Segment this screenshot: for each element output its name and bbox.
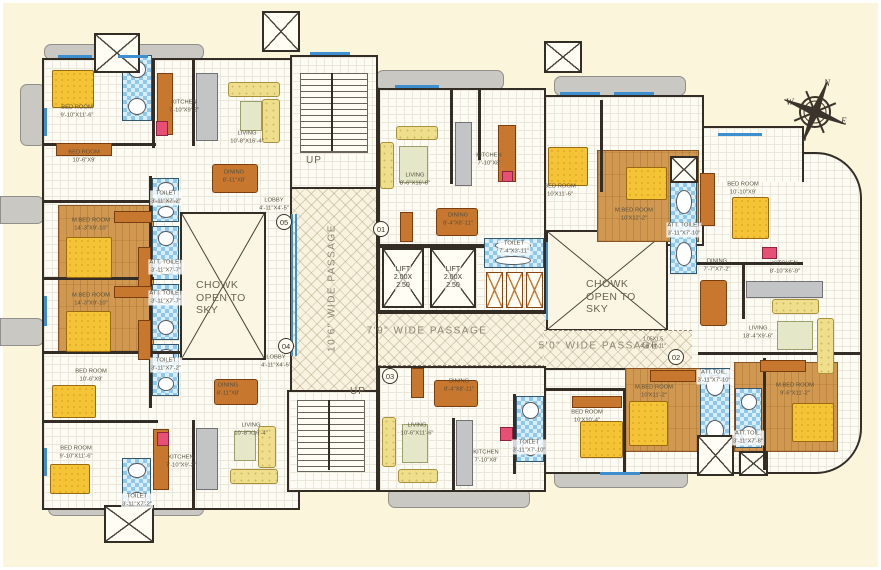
wall xyxy=(513,394,516,474)
room-label: M.BED ROOM9'-6"X11'-2" xyxy=(776,382,814,397)
wall xyxy=(42,420,158,423)
window xyxy=(44,448,47,476)
room-label: M.BED ROOM14'-3"X9'-10" xyxy=(72,292,110,307)
wall xyxy=(600,100,603,192)
wall xyxy=(742,262,745,319)
bed xyxy=(52,385,96,418)
room-label: LOBBY4'-11"X4'-5" xyxy=(259,197,289,212)
sofa xyxy=(380,142,394,189)
kitchen-counter xyxy=(456,420,473,486)
room-label: BED ROOM9'-10"X11'-6" xyxy=(60,445,93,460)
room-label: LIVING18'-4"X9'-6" xyxy=(743,325,773,340)
bed xyxy=(52,70,94,108)
shaft xyxy=(670,156,698,183)
kitchen-counter xyxy=(196,73,218,141)
lift-label: LIFT xyxy=(445,266,461,274)
wardrobe xyxy=(760,360,806,372)
unit-number-03: 03 xyxy=(382,368,398,384)
room-label: KITCHEN7'-10"X9'-2" xyxy=(169,99,199,114)
wall xyxy=(42,351,180,354)
niche-dimension: 1.05X1.54'-0"X4'-11" xyxy=(640,337,666,350)
compass-e: E xyxy=(841,116,847,126)
floor-plan: LIFT 2.00X 2.50 LIFT 2.00X 2.50 xyxy=(0,0,881,570)
duct-box xyxy=(506,272,523,308)
accent-block xyxy=(502,171,513,182)
lift-2: LIFT 2.00X 2.50 xyxy=(430,248,476,308)
room-label: ATT. TOILET3'-11"X7'-7" xyxy=(148,290,183,305)
room-label: DINING8'-4"X8'-11" xyxy=(444,378,474,393)
wardrobe xyxy=(138,320,151,360)
room-label: ATT.TOIL.3'-11"X7'-8" xyxy=(732,430,764,445)
unit-number-02: 02 xyxy=(668,349,684,365)
bed xyxy=(629,401,668,446)
rug xyxy=(240,101,262,131)
room-label: LIVING10'-6"X11'-6" xyxy=(401,422,434,437)
balcony xyxy=(0,196,44,224)
unit-number-01: 01 xyxy=(373,221,389,237)
room-label: TOILET3'-11"X7'-2" xyxy=(150,190,182,205)
bed xyxy=(626,167,667,200)
room-label: BED ROOM10'-6"X9' xyxy=(75,368,107,383)
passage-79 xyxy=(378,312,546,366)
room-label: ATT. TOILET3'-11"X7'-7" xyxy=(148,259,183,274)
staircase-top xyxy=(300,73,368,153)
lift-label: LIFT xyxy=(395,266,411,274)
shaft xyxy=(697,435,734,476)
compass-n: N xyxy=(824,78,830,88)
wardrobe xyxy=(114,211,152,223)
window xyxy=(718,133,762,136)
stairs-up-label: UP xyxy=(350,386,366,397)
sofa xyxy=(230,469,278,484)
wardrobe xyxy=(411,368,424,398)
duct-box xyxy=(526,272,543,308)
passage-vertical-label: 10'6" WIDE PASSAGE xyxy=(327,224,338,352)
lift-size: 2.50 xyxy=(445,282,461,290)
room-label: M.BED ROOM10'X12'-2" xyxy=(615,207,653,222)
window xyxy=(295,214,297,356)
wall xyxy=(452,418,455,492)
wardrobe xyxy=(114,286,152,298)
shaft xyxy=(104,505,154,543)
balcony xyxy=(0,318,44,346)
unit-number-04: 04 xyxy=(278,338,294,354)
wall xyxy=(544,388,626,391)
unit-number-05: 05 xyxy=(276,214,292,230)
window xyxy=(44,296,47,326)
bed xyxy=(792,403,834,442)
room-label: ATT.TOIL.3'-11"X7'-10" xyxy=(697,369,732,384)
compass-rose xyxy=(779,76,851,148)
window xyxy=(546,242,548,320)
room-label: LOBBY4'-11"X4'-5" xyxy=(261,354,291,369)
wardrobe xyxy=(700,173,715,226)
chowk-right-label: CHOWKOPEN TOSKY xyxy=(586,278,636,316)
lift-size: 2.00X xyxy=(393,274,413,282)
kitchen-counter xyxy=(746,281,823,298)
wall xyxy=(698,352,862,355)
bed xyxy=(548,147,588,186)
wardrobe xyxy=(650,370,696,382)
wall xyxy=(450,90,453,184)
room-label: DINING8'-4"X8'-11" xyxy=(443,212,473,227)
room-label: TOILET3'-11"X7'-2" xyxy=(150,357,182,372)
room-label: LIVING10'-8"X16'-4" xyxy=(230,130,263,145)
compass-s: S xyxy=(802,133,807,143)
room-label: DINING8'-11"X8' xyxy=(223,169,246,184)
accent-block xyxy=(156,121,168,136)
sofa xyxy=(396,126,438,140)
stairs-up-label: UP xyxy=(306,155,322,166)
sofa xyxy=(817,318,834,374)
room-label: LIVING8'-6"X16'-6" xyxy=(400,172,430,187)
wall xyxy=(763,358,766,470)
window xyxy=(310,52,350,55)
room-label: TOILET3'-11"X7'-10" xyxy=(512,439,547,454)
shaft xyxy=(262,11,300,52)
shaft xyxy=(94,33,140,73)
room-label: BED ROOM10'-10"X9' xyxy=(727,181,759,196)
sofa xyxy=(262,99,280,143)
bed xyxy=(732,197,769,239)
room-label: M.BED ROOM14'-3"X9'-10" xyxy=(72,217,110,232)
chowk-left-label: CHOWKOPEN TOSKY xyxy=(196,279,246,317)
window xyxy=(291,214,293,356)
kitchen-counter xyxy=(455,122,472,186)
sofa xyxy=(228,82,280,97)
room-label: BED ROOM10'-6"X9' xyxy=(68,149,100,164)
wardrobe xyxy=(400,212,413,242)
room-label: ATT. TOILET3'-11"X7'-10" xyxy=(666,222,701,237)
room-label: LIVING10'-8"X16'-4" xyxy=(234,422,267,437)
bed xyxy=(66,237,112,278)
room-label: KITCHEN8'-10"X6'-9" xyxy=(770,260,800,275)
sofa xyxy=(398,469,438,483)
window xyxy=(600,472,640,475)
window xyxy=(395,85,439,88)
stair-divider xyxy=(328,400,330,470)
shaft xyxy=(544,41,582,73)
room-label: DINING8'-11"X8' xyxy=(217,382,240,397)
window xyxy=(560,92,600,95)
room-label: BED ROOM10'X10'-4" xyxy=(571,409,603,424)
kitchen-counter xyxy=(196,428,218,490)
room-label: M.BED ROOM10'X11'-2" xyxy=(635,384,673,399)
room-label: KITCHEN7'-10"X8' xyxy=(476,152,501,167)
room-label: BED ROOM9'-10"X11'-6" xyxy=(61,104,94,119)
window xyxy=(58,55,92,58)
accent-block xyxy=(157,432,169,446)
staircase-bottom xyxy=(297,400,365,472)
bed xyxy=(580,421,623,458)
lift-size: 2.50 xyxy=(395,282,411,290)
lift-size: 2.00X xyxy=(443,274,463,282)
window xyxy=(118,55,148,58)
room-label: TOILET3'-11"X7'-2" xyxy=(121,493,153,508)
sofa xyxy=(382,417,396,467)
bed xyxy=(50,464,90,494)
wall xyxy=(623,388,626,473)
dining-table xyxy=(700,280,727,326)
sofa xyxy=(772,299,819,314)
wall xyxy=(152,58,155,148)
passage-mid-label: 7'9" WIDE PASSAGE xyxy=(367,326,488,337)
room-label: DINING7'-7"X7'-2" xyxy=(704,258,731,273)
stair-divider xyxy=(331,73,333,151)
room-label: KITCHEN7'-10"X8' xyxy=(473,449,498,464)
bed xyxy=(66,311,111,352)
window xyxy=(614,92,654,95)
room-label: KITCHEN7'-10"X9'-2" xyxy=(166,454,196,469)
room-label: BED ROOM10'X11'-6" xyxy=(544,183,576,198)
wardrobe xyxy=(572,396,622,408)
wall xyxy=(478,90,481,160)
room-label: TOILET7'-4"X3'-11" xyxy=(498,240,530,255)
rug xyxy=(777,321,813,350)
duct-box xyxy=(486,272,503,308)
compass-w: W xyxy=(786,97,794,107)
lift-1: LIFT 2.00X 2.50 xyxy=(382,248,424,308)
window xyxy=(44,108,47,136)
accent-block xyxy=(762,247,777,259)
